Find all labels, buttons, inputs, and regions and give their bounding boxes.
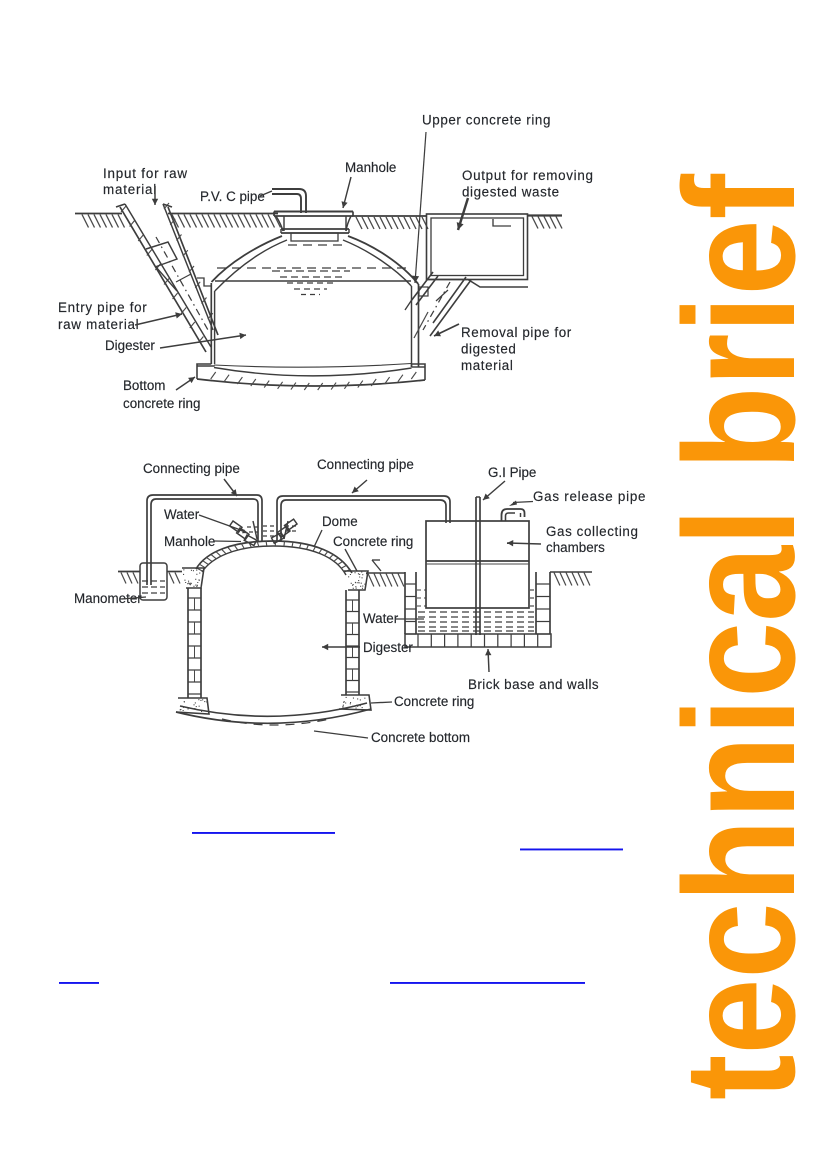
svg-text:Dome: Dome (322, 514, 358, 529)
svg-text:Concrete ring: Concrete ring (394, 694, 474, 709)
svg-text:Bottom: Bottom (123, 378, 165, 393)
svg-text:Digester: Digester (105, 338, 155, 353)
svg-text:Digester: Digester (363, 640, 413, 655)
svg-text:Input for raw: Input for raw (103, 166, 188, 181)
svg-text:raw material: raw material (58, 317, 139, 332)
svg-text:P.V. C pipe: P.V. C pipe (200, 189, 265, 204)
svg-text:chambers: chambers (546, 540, 605, 555)
svg-text:Manhole: Manhole (345, 160, 396, 175)
svg-text:Concrete bottom: Concrete bottom (371, 730, 470, 745)
svg-text:Water: Water (363, 611, 399, 626)
svg-text:Concrete ring: Concrete ring (333, 534, 413, 549)
svg-text:material: material (461, 358, 513, 373)
svg-text:Brick base and walls: Brick base and walls (468, 677, 599, 692)
svg-text:G.I Pipe: G.I Pipe (488, 465, 536, 480)
svg-text:material: material (103, 182, 157, 197)
svg-text:Connecting pipe: Connecting pipe (143, 461, 240, 476)
svg-text:Output for removing: Output for removing (462, 168, 594, 183)
svg-text:Manhole: Manhole (164, 534, 215, 549)
svg-text:digested: digested (461, 342, 516, 357)
svg-text:Gas release pipe: Gas release pipe (533, 489, 646, 504)
svg-text:Upper concrete ring: Upper concrete ring (422, 113, 551, 128)
svg-text:digested waste: digested waste (462, 185, 560, 200)
svg-text:Gas collecting: Gas collecting (546, 524, 639, 539)
svg-text:Removal pipe for: Removal pipe for (461, 325, 572, 340)
svg-text:Water: Water (164, 507, 200, 522)
svg-text:Entry pipe for: Entry pipe for (58, 300, 147, 315)
svg-text:Connecting pipe: Connecting pipe (317, 457, 414, 472)
svg-text:technical brief: technical brief (652, 174, 827, 1100)
svg-text:concrete ring: concrete ring (123, 396, 200, 411)
